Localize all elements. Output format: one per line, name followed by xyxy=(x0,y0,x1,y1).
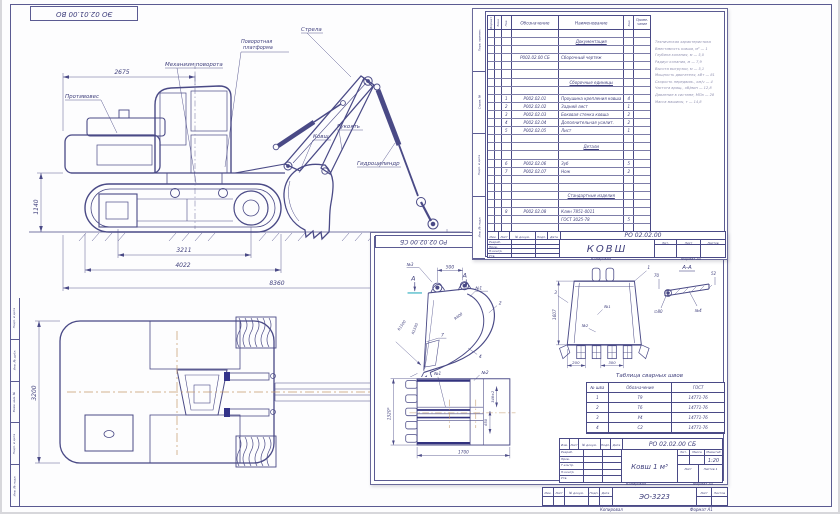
dim-3200: 3200 xyxy=(31,385,38,400)
spec-row xyxy=(488,200,650,208)
hdr-zone: Зона xyxy=(496,19,500,27)
col-data: Дата xyxy=(600,488,611,496)
left-margin-strip: Подп. и датаИнв. № дубл.Взам. инв. №Подп… xyxy=(10,298,20,507)
footer-copy: Копировал xyxy=(626,483,646,487)
label-counterweight: Противовес xyxy=(65,94,99,100)
role-razrab: Разраб. xyxy=(560,450,584,456)
hdr-name: Наименование xyxy=(559,20,623,25)
tech-line: Давление в системе, МПа — 28 xyxy=(655,92,723,99)
col-podp: Подп. xyxy=(589,488,600,496)
spec-row: 6 Р002.02.06 Зуб 5 xyxy=(488,160,650,168)
role-prov: Пров. xyxy=(488,245,512,249)
working-equipment xyxy=(273,76,438,239)
label-boom: Стрела xyxy=(301,27,322,33)
dim-500: 500 xyxy=(446,265,455,271)
machine-model: ЭО-3223 xyxy=(613,488,697,505)
counterweight-body xyxy=(65,135,160,173)
mark-no2: №2 xyxy=(581,323,589,328)
role-utv: Утв. xyxy=(488,254,512,259)
col-izm: Изм. xyxy=(488,232,499,239)
tech-line: Мощность двигателя, кВт — 81 xyxy=(655,72,723,79)
callout-1: 1 xyxy=(647,265,650,271)
bucket-title-block: Изм. Лист № докум. Подп. Дата РО 02.02.0… xyxy=(559,438,723,483)
tech-line: Радиус копания, м — 7,9 xyxy=(655,59,723,66)
bucket-profile xyxy=(424,288,495,372)
col-data: Дата xyxy=(548,232,560,239)
spec-margin-cell: Перв. примен. xyxy=(473,9,485,72)
radius-r1590: R1590 xyxy=(411,322,419,335)
col-list: Лист xyxy=(499,232,510,239)
scale-value: 1:20 xyxy=(705,456,722,464)
role-utv: Утв. xyxy=(560,476,584,483)
spec-row xyxy=(488,30,650,38)
dim-8360: 8360 xyxy=(269,280,284,287)
hdr-note-2: чание xyxy=(634,23,650,27)
spec-row: 2 Р002.02.02 Задний лист 1 xyxy=(488,103,650,111)
drawing-title: Ковш 1 м³ xyxy=(622,450,678,483)
spec-footer-format: Формат А4 xyxy=(681,258,701,262)
label-cylinder: Гидроцилиндр xyxy=(357,161,400,167)
weld-table-caption: Таблица сварных швов xyxy=(616,374,683,380)
lbl-mass: Масса xyxy=(690,450,705,455)
spec-title: КОВШ xyxy=(560,240,655,258)
section-letter-right: А xyxy=(462,273,467,280)
lbl-lit: Лит. xyxy=(655,240,677,244)
spec-margin-cell: Подп. и дата xyxy=(473,134,485,197)
excavator-plan-view: 3200 xyxy=(27,293,377,498)
dim-200: 200 xyxy=(572,360,580,365)
spec-footer-copy: Копировал xyxy=(591,258,611,262)
crawler-track xyxy=(85,184,281,232)
spec-row xyxy=(488,87,650,95)
weld-header-gost: ГОСТ xyxy=(672,383,724,392)
dim-70: 70 xyxy=(654,273,660,278)
section-letter-left: А xyxy=(410,275,415,282)
lbl-scale: Масштаб xyxy=(705,450,722,455)
spec-row xyxy=(488,70,650,78)
spec-row: 8 Р002.02.08 Клин 7851-0011 xyxy=(488,208,650,216)
dim-d80: ∅80 xyxy=(654,309,663,314)
spec-row xyxy=(488,151,650,159)
role-prov: Пров. xyxy=(560,457,584,463)
drawing-sheet: ЭО 02.01.00 ВО Подп. и датаИнв. № дубл.В… xyxy=(2,0,838,512)
mark-no1: №1 xyxy=(603,304,610,309)
spec-row: Детали xyxy=(488,143,650,151)
dim-1700: 1700 xyxy=(458,450,469,456)
weld-row: 2 Т6 14771-76 xyxy=(587,403,724,413)
spec-row xyxy=(488,62,650,70)
spec-doc-number: РО 02.02.00 xyxy=(560,232,725,239)
footer-format: Формат А4 xyxy=(693,483,713,487)
dim-2675: 2675 xyxy=(114,69,129,76)
main-title-block: Изм. Лист № докум. Подп. Дата ЭО-3223 Ли… xyxy=(542,487,728,506)
lbl-sheet: Лист xyxy=(678,465,699,482)
engine-hood xyxy=(87,118,165,136)
col-docnum: № докум. xyxy=(510,232,536,239)
hdr-format: Формат xyxy=(489,16,493,28)
dim-650: 650 xyxy=(484,418,488,426)
role-nkontr: Н.контр. xyxy=(488,249,512,253)
spec-margin-strip: Перв. примен.Справ. №Подп. и датаИнв. № … xyxy=(473,9,485,259)
hdr-qty: Кол. xyxy=(627,19,631,26)
lbl-sheet: Лист xyxy=(677,240,701,244)
bucket-cylinder xyxy=(378,90,399,145)
col-data: Дата xyxy=(611,439,622,449)
mark-no1: №1 xyxy=(474,285,482,290)
dim-4022: 4022 xyxy=(175,262,190,269)
col-list: Лист xyxy=(554,488,565,496)
sheet-footer-format: Формат А1 xyxy=(690,508,713,512)
spec-row: Документация xyxy=(488,38,650,46)
sheet-footer-copy: Копировал xyxy=(600,508,623,512)
weld-row: 3 У4 14771-76 xyxy=(587,413,724,423)
dim-52: 52 xyxy=(711,271,717,276)
dim-300: 300 xyxy=(608,360,616,365)
spec-row: 5 Р002.02.05 Лист 1 xyxy=(488,127,650,135)
spec-row xyxy=(488,46,650,54)
spec-row: Стандартные изделия xyxy=(488,192,650,200)
weld-table: № шва Обозначение ГОСТ 1 Т9 14771-76 2 Т… xyxy=(586,382,725,434)
weld-row: 4 С2 14771-76 xyxy=(587,423,724,433)
col-izm: Изм. xyxy=(560,439,570,449)
plan-dimension xyxy=(35,321,60,463)
spec-row xyxy=(488,184,650,192)
spec-margin-cell: Инв. № подл. xyxy=(473,197,485,260)
tech-line: Вместимость ковша, м³ — 1 xyxy=(655,46,723,53)
label-arm: Рукоять xyxy=(337,124,360,130)
tech-line: Скорость передвиж., км/ч — 4 xyxy=(655,79,723,86)
section-title: А-А xyxy=(681,265,692,271)
spec-row xyxy=(488,135,650,143)
tech-line: Высота выгрузки, м — 5,1 xyxy=(655,66,723,73)
spec-table-header: Формат Зона Поз. Обозначение Наименовани… xyxy=(488,16,650,30)
bucket-side-view: №3 А А 500 R1500 R1590 R600 №1 2 4 7 6 8 xyxy=(385,255,515,377)
boom-cylinder xyxy=(278,122,314,146)
upper-structure xyxy=(65,86,285,184)
dim-1320: 1320* xyxy=(387,407,393,420)
callout-2: 2 xyxy=(499,301,502,307)
label-swing-mechanism: Механизм поворота xyxy=(165,62,223,68)
mark-no2: №2 xyxy=(480,370,488,376)
col-podp: Подп. xyxy=(536,232,548,239)
callout-7: 7 xyxy=(441,332,444,338)
weld-row: 1 Т9 14771-76 xyxy=(587,393,724,403)
lbl-lit: Лит. xyxy=(678,450,690,455)
margin-cell: Подп. и дата xyxy=(10,423,19,465)
bucket-bottom-view: №1 №2 1320* 1700 348±2 650 xyxy=(383,369,525,469)
lbl-sheets: Листов xyxy=(712,488,727,496)
dim-1140: 1140 xyxy=(33,199,40,214)
margin-cell: Инв. № дубл. xyxy=(10,340,19,382)
callout-3: 3 xyxy=(554,290,557,296)
tech-line: Масса машины, т — 14,8 xyxy=(655,99,723,106)
role-razrab: Разраб. xyxy=(488,240,512,244)
radius-r600: R600 xyxy=(454,311,464,320)
lbl-sheets: Листов 1 xyxy=(699,465,722,482)
mark-no4: №4 xyxy=(694,308,702,313)
spec-row: 7 Р002.02.07 Нож 2 xyxy=(488,168,650,176)
spec-title-block: Изм. Лист № докум. Подп. Дата РО 02.02.0… xyxy=(487,231,726,258)
callout-4: 4 xyxy=(479,354,482,360)
spec-row: Р002.02.00 СБ Сборочный чертеж xyxy=(488,54,650,62)
margin-cell: Взам. инв. № xyxy=(10,382,19,424)
doc-number: РО 02.02.00 СБ xyxy=(622,439,722,449)
stamp-number: РО 02.02.00 СБ xyxy=(400,238,447,245)
hdr-designation: Обозначение xyxy=(512,20,558,25)
spec-margin-cell: Справ. № xyxy=(473,72,485,135)
weld-header-desig: Обозначение xyxy=(609,383,673,392)
tech-line: Техническая характеристика xyxy=(655,39,723,46)
col-docnum: № докум. xyxy=(579,439,601,449)
tech-line: Частота вращ., об/мин — 12,8 xyxy=(655,85,723,92)
bucket-rotated-stamp: РО 02.02.00 СБ xyxy=(375,235,473,248)
col-list: Лист xyxy=(570,439,579,449)
mark-no1: №1 xyxy=(433,371,441,377)
col-podp: Подп. xyxy=(601,439,611,449)
spec-row: ГОСТ 3025-78 5 xyxy=(488,216,650,224)
front-teeth xyxy=(559,345,649,359)
mark-no3: №3 xyxy=(406,262,414,267)
dim-3211: 3211 xyxy=(176,247,191,254)
tech-line: Глубина копания, м — 5,0 xyxy=(655,52,723,59)
bucket-drawing-panel: РО 02.02.00 СБ xyxy=(370,232,728,485)
spec-row: 3 Р002.02.03 Боковая стенка ковша 2 xyxy=(488,111,650,119)
weld-header-num: № шва xyxy=(587,383,609,392)
dim-1607: 1607 xyxy=(552,309,558,320)
spec-row xyxy=(488,176,650,184)
label-platform-2: платформа xyxy=(243,45,273,51)
leader-lines xyxy=(65,33,401,183)
hdr-pos: Поз. xyxy=(504,19,508,26)
specification-sheet: Перв. примен.Справ. №Подп. и датаИнв. № … xyxy=(472,8,728,260)
col-docnum: № докум. xyxy=(565,488,589,496)
role-tkontr: Т.контр. xyxy=(560,463,584,469)
margin-cell: Подп. и дата xyxy=(10,298,19,340)
col-izm: Изм. xyxy=(543,488,554,496)
spec-row: 4 Р002.02.04 Дополнительная усилит. стен… xyxy=(488,119,650,127)
bottom-teeth xyxy=(406,381,417,443)
spec-row: Сборочные единицы xyxy=(488,79,650,87)
label-bucket: Ковш xyxy=(313,134,329,140)
spec-table: Формат Зона Поз. Обозначение Наименовани… xyxy=(487,15,651,233)
dim-348: 348±2 xyxy=(491,390,495,403)
radius-r1500: R1500 xyxy=(397,319,407,331)
lbl-sheet: Лист xyxy=(697,488,712,496)
bucket-side xyxy=(284,164,333,239)
bucket-front-view: №1 №2 3 1 1607 200 300 xyxy=(547,263,659,375)
lbl-sheets: Листов xyxy=(701,240,725,244)
bucket-section-aa: А-А 70 52 ∅80 №4 xyxy=(651,261,723,319)
spec-row: 1 Р002.02.01 Проушина крепления ковша 4 xyxy=(488,95,650,103)
role-nkontr: Н.контр. xyxy=(560,470,584,476)
margin-cell: Инв. № подл. xyxy=(10,465,19,507)
cab xyxy=(155,86,231,173)
tech-characteristics: Техническая характеристика Вместимость к… xyxy=(655,39,723,105)
